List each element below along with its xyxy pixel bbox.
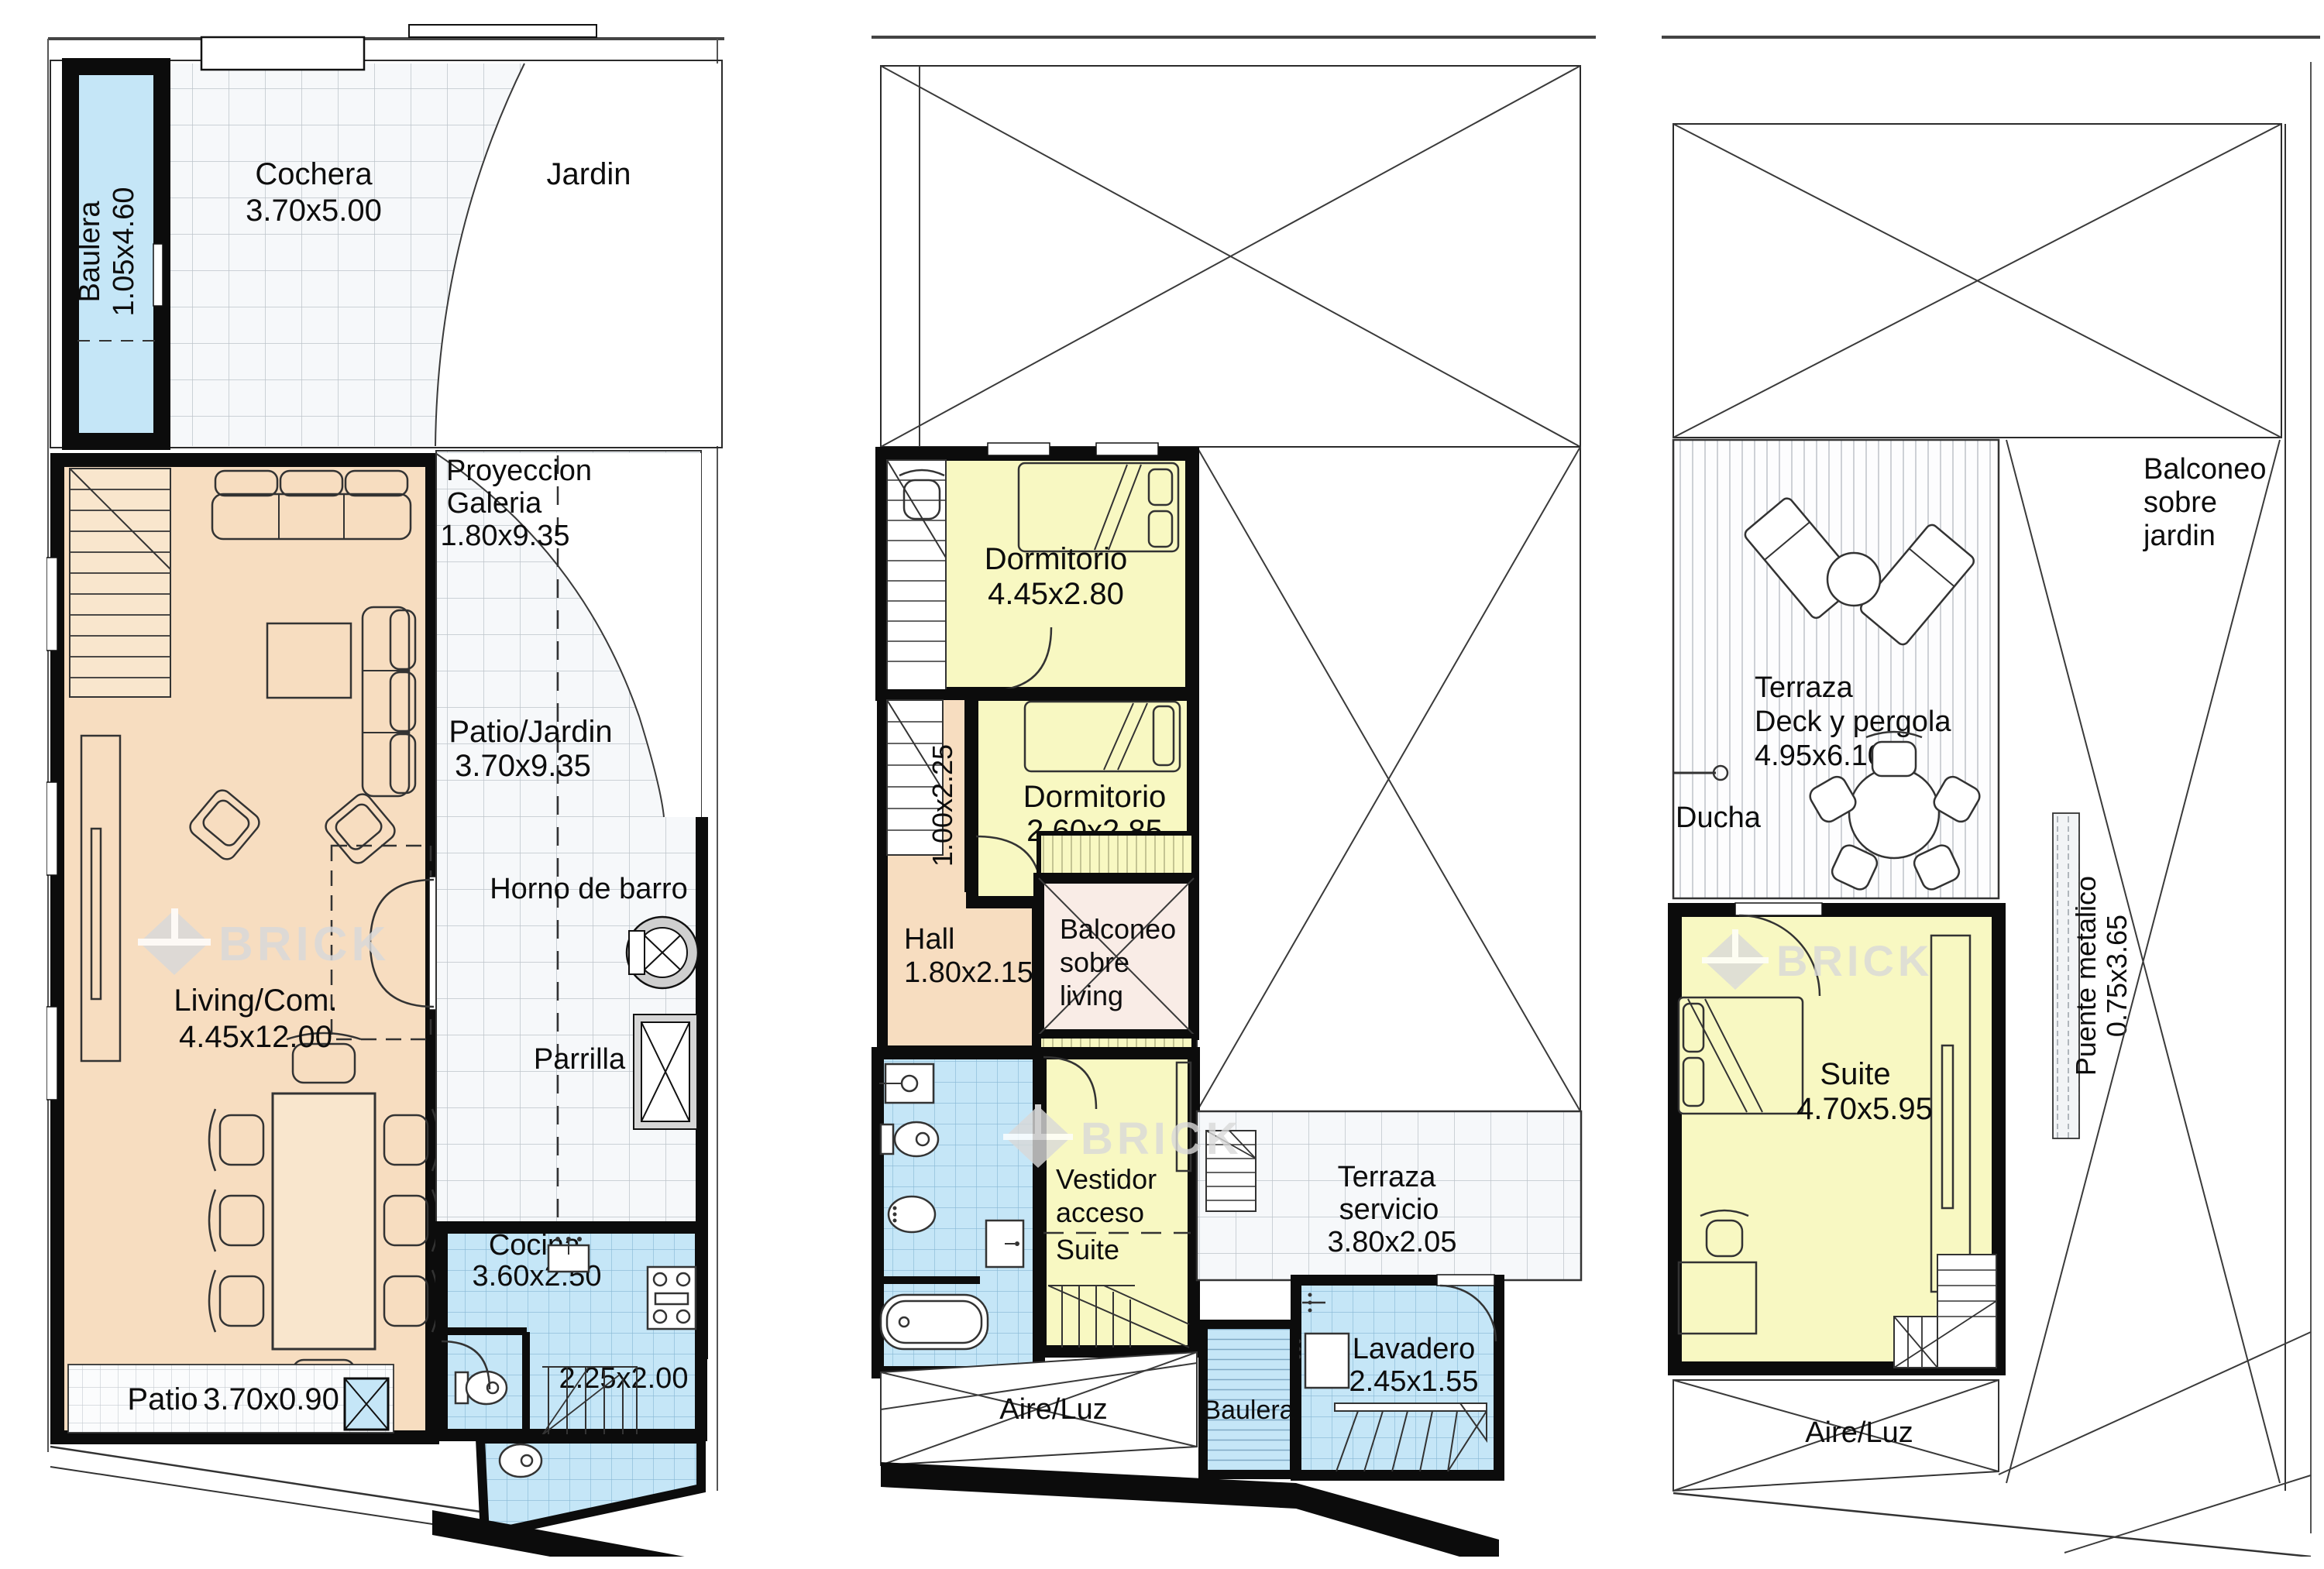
room-lavadero: Lavadero 2.45x1.55 bbox=[1296, 1275, 1499, 1475]
bed-icon bbox=[1019, 463, 1178, 551]
gate bbox=[409, 25, 596, 37]
balconeo-jardin-l1: Balconeo bbox=[2144, 453, 2266, 486]
puente-label: Puente metalico bbox=[2070, 876, 2102, 1076]
side-table-icon bbox=[1827, 553, 1880, 606]
ground-floor-plan: Cochera 3.70x5.00 Jardin Baulera 1.05x4.… bbox=[46, 15, 728, 1557]
watermark-text: BRICK bbox=[1776, 936, 1933, 985]
planter-icon bbox=[345, 1378, 388, 1430]
bottom-diagonal bbox=[1999, 1332, 2311, 1475]
ducha-label: Ducha bbox=[1676, 802, 1762, 834]
washing-machine-icon bbox=[1298, 1334, 1349, 1388]
watermark-text: BRICK bbox=[1081, 1114, 1243, 1164]
brick-watermark: BRICK bbox=[1702, 929, 1933, 990]
patio-label: Patio bbox=[127, 1382, 198, 1416]
terraza-serv-dims: 3.80x2.05 bbox=[1328, 1226, 1457, 1258]
sink-icon bbox=[879, 1064, 933, 1103]
second-floor-plan: Terraza Deck y pergola 4.95x6.10 Ducha bbox=[1662, 15, 2324, 1557]
terraza-deck-l1: Terraza bbox=[1755, 671, 1854, 704]
room-bathroom bbox=[878, 1053, 1039, 1372]
stairs-icon bbox=[887, 460, 946, 691]
parrilla-label: Parrilla bbox=[534, 1043, 626, 1076]
stairs-icon bbox=[70, 469, 170, 697]
balconeo-jardin-l3: jardin bbox=[2143, 520, 2216, 552]
puente-metalico: Puente metalico 0.75x3.65 bbox=[2053, 813, 2133, 1138]
dorm2-label: Dormitorio bbox=[1023, 780, 1166, 814]
window bbox=[46, 782, 57, 875]
toilet-icon bbox=[881, 1122, 938, 1156]
void-top bbox=[1673, 124, 2281, 438]
bottom-diagonal2 bbox=[2064, 1475, 2311, 1553]
patiojardin-label: Patio/Jardin bbox=[449, 715, 612, 749]
baulera-dims: 1.05x4.60 bbox=[108, 187, 140, 317]
balconeo-sobre-living: Balconeo sobre living bbox=[1039, 878, 1194, 1035]
lot-slant-line2 bbox=[50, 1467, 469, 1530]
terraza-serv-l1: Terraza bbox=[1338, 1161, 1437, 1193]
room-dormitorio-1: Dormitorio 4.45x2.80 bbox=[882, 443, 1192, 694]
balconeo-l2: sobre bbox=[1060, 946, 1129, 978]
cochera-label: Cochera bbox=[255, 157, 373, 191]
void-over-living bbox=[1197, 447, 1580, 1111]
dorm1-dims: 4.45x2.80 bbox=[988, 577, 1124, 611]
hall-dims: 1.80x2.15 bbox=[904, 956, 1033, 989]
watermark-text: BRICK bbox=[218, 918, 390, 971]
baulera-window bbox=[153, 244, 163, 306]
stove-icon bbox=[648, 1267, 696, 1329]
horno-label: Horno de barro bbox=[490, 873, 688, 905]
suite-dims: 4.70x5.95 bbox=[1796, 1092, 1933, 1126]
jardin-label: Jardin bbox=[547, 157, 631, 191]
patio-dims: 3.70x0.90 bbox=[203, 1382, 339, 1416]
terraza-deck-dims: 4.95x6.10 bbox=[1755, 740, 1884, 772]
window bbox=[1096, 443, 1158, 455]
room-suite: Suite 4.70x5.95 BRICK bbox=[1675, 903, 1999, 1368]
hall-label: Hall bbox=[904, 923, 954, 956]
aireluz-label: Aire/Luz bbox=[999, 1393, 1107, 1426]
garage-door bbox=[201, 37, 364, 70]
window bbox=[46, 1007, 57, 1100]
baulera2-label: Baulera bbox=[1203, 1396, 1294, 1425]
balconeo-l3: living bbox=[1060, 980, 1123, 1011]
room-baulera2: Baulera bbox=[1203, 1324, 1294, 1475]
terraza-serv-l2: servicio bbox=[1339, 1193, 1439, 1226]
bidet-icon bbox=[889, 1196, 935, 1232]
window bbox=[46, 558, 57, 651]
void-over-cochera bbox=[881, 66, 1580, 447]
terraza-deck-l2: Deck y pergola bbox=[1755, 706, 1951, 738]
room-jardin: Jardin bbox=[547, 157, 631, 191]
horno-icon bbox=[627, 917, 698, 988]
vestidor-l3: Suite bbox=[1056, 1234, 1119, 1265]
room-terraza-deck: Terraza Deck y pergola 4.95x6.10 Ducha bbox=[1673, 440, 1999, 898]
brick-watermark: BRICK bbox=[1003, 1104, 1243, 1168]
vestidor-l2: acceso bbox=[1056, 1196, 1144, 1228]
parrilla-icon bbox=[634, 1015, 697, 1129]
room-terraza-servicio: Terraza servicio 3.80x2.05 bbox=[1197, 1111, 1581, 1280]
lot-slant-line bbox=[1673, 1493, 2311, 1557]
baulera-label: Baulera bbox=[74, 201, 106, 303]
living-dims: 4.45x12.00 bbox=[179, 1020, 332, 1054]
void-aire-luz: Aire/Luz bbox=[1673, 1380, 1999, 1491]
bed-icon bbox=[1679, 997, 1803, 1114]
room-vestidor: Vestidor acceso Suite bbox=[1040, 1053, 1194, 1351]
cochera-dims: 3.70x5.00 bbox=[246, 194, 382, 228]
toilet-icon bbox=[500, 1444, 541, 1477]
void-jardin: Balconeo sobre jardin bbox=[2006, 440, 2280, 1483]
shower-box-icon bbox=[986, 1221, 1023, 1267]
bathtub-icon bbox=[881, 1295, 988, 1349]
balcony-strip bbox=[1039, 833, 1194, 877]
balconeo-l1: Balconeo bbox=[1060, 913, 1176, 945]
void-aire-luz: Aire/Luz bbox=[881, 1352, 1197, 1465]
proyeccion-l1: Proyeccion bbox=[446, 455, 592, 487]
lavadero-label: Lavadero bbox=[1353, 1333, 1475, 1365]
proyeccion-dims: 1.80x9.35 bbox=[441, 520, 570, 552]
room-living: Living/Com. 4.45x12.00 BRICK bbox=[46, 460, 442, 1437]
vestidor-l1: Vestidor bbox=[1056, 1163, 1157, 1195]
toilet-icon bbox=[456, 1372, 507, 1404]
brick-watermark: BRICK bbox=[138, 908, 390, 975]
proyeccion-l2: Galeria bbox=[447, 487, 542, 520]
floorplan-sheet: Cochera 3.70x5.00 Jardin Baulera 1.05x4.… bbox=[0, 0, 2324, 1569]
first-floor-plan: Dormitorio 4.45x2.80 Hall 1.80x2.15 1.00… bbox=[871, 15, 1600, 1557]
balconeo-jardin-l2: sobre bbox=[2144, 486, 2217, 519]
bed-icon bbox=[1025, 702, 1180, 771]
room-cochera: Cochera 3.70x5.00 bbox=[161, 64, 720, 446]
lot-slant-line bbox=[50, 1447, 480, 1512]
suite-label: Suite bbox=[1820, 1057, 1890, 1091]
living-label: Living/Com. bbox=[174, 984, 337, 1018]
window bbox=[988, 443, 1050, 455]
patiojardin-dims: 3.70x9.35 bbox=[455, 749, 591, 783]
room-cocina: Cocina 3.60x2.50 2.25x2.00 bbox=[442, 1227, 701, 1435]
lavadero-dims: 2.45x1.55 bbox=[1349, 1365, 1479, 1398]
room-baulera: Baulera 1.05x4.60 bbox=[70, 67, 163, 441]
aireluz-label: Aire/Luz bbox=[1805, 1416, 1913, 1449]
dorm1-label: Dormitorio bbox=[985, 542, 1127, 576]
pasillo-dims: 1.00x2.25 bbox=[927, 744, 958, 867]
